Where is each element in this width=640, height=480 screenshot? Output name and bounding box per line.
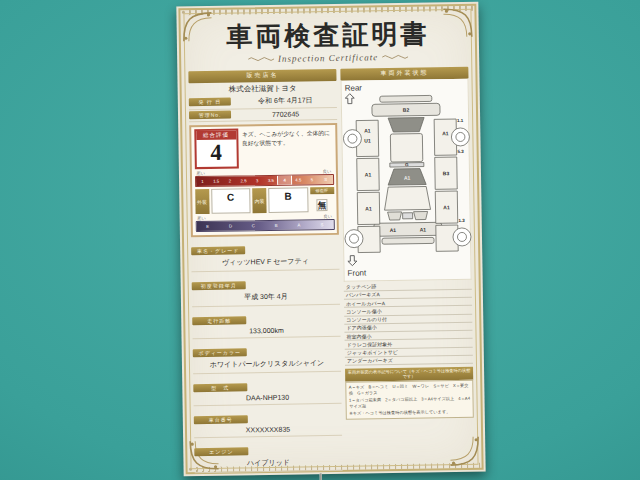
damage-mark: A1 xyxy=(442,130,449,136)
field-row: 初度登録年月 平成 30年 4月 xyxy=(191,269,340,306)
exterior-condition-panel: 車両外装状態 Rear Front xyxy=(340,66,475,480)
dealer-name: 株式会社滋賀トヨタ xyxy=(189,80,337,95)
evaluation-box: 総合評価 4 キズ、へこみが少なく、全体的に良好な状態です。 悪い 良い 1 1… xyxy=(189,122,339,236)
scale-tick: C xyxy=(242,221,265,230)
field-label: ボディーカラー xyxy=(193,348,247,357)
field-row: 車名・グレード ヴィッツHEV F セーフティ xyxy=(191,234,340,271)
scale-tick: 5 xyxy=(305,175,319,184)
damage-mark: A1 xyxy=(443,204,450,210)
damage-mark: A1 xyxy=(404,174,411,180)
tire-reading: 1.3 xyxy=(459,217,466,222)
scale-tick-selected: 4 xyxy=(278,175,292,184)
scale-tick: E xyxy=(196,222,219,231)
inspector-signature-box xyxy=(320,473,322,480)
field-label: 車台番号 xyxy=(194,415,248,424)
damage-mark: U1 xyxy=(364,137,371,143)
scale-tick: 1.5 xyxy=(209,176,223,185)
field-row: 走行距離 133,000km xyxy=(192,304,340,338)
damage-mark: B3 xyxy=(443,170,450,176)
flourish-right-icon xyxy=(382,53,408,59)
issue-date-label: 発 行 日 xyxy=(189,98,231,107)
certificate-title: 車両検査証明書 xyxy=(188,20,468,53)
issue-date-value: 令和 6年 4月17日 xyxy=(234,95,337,107)
field-label: 車名・グレード xyxy=(191,246,245,255)
field-row: 型 式 DAA-NHP130 xyxy=(193,371,341,405)
inspection-certificate: 車両検査証明書 Inspection Certificate 販売店名 株式会社… xyxy=(176,2,485,477)
defect-item: アンダーカバーキズ xyxy=(345,356,473,366)
legend-line: ※キズ・ヘコミ等は検査時の状態を表示しています。 xyxy=(349,408,470,416)
field-value: ホワイトパールクリスタルシャイン xyxy=(193,358,341,370)
field-value: 平成 30年 4月 xyxy=(192,291,340,303)
field-value: DAA-NHP130 xyxy=(193,393,341,402)
overall-score-scale: 1 1.5 2 2.5 3 3.5 4 4.5 5 S xyxy=(194,173,333,186)
scale-tick: S xyxy=(310,220,333,229)
field-label: エンジン xyxy=(194,447,248,456)
interior-grade: B xyxy=(268,187,308,213)
field-label: 型 式 xyxy=(193,383,247,392)
field-value: 133,000km xyxy=(192,326,340,335)
title-block: 車両検査証明書 Inspection Certificate xyxy=(188,20,469,65)
interior-label: 内装 xyxy=(252,188,266,213)
certificate-subtitle: Inspection Certificate xyxy=(278,52,378,64)
damage-mark: B2 xyxy=(403,106,410,112)
tire-reading: 1.1 xyxy=(457,117,464,122)
scale-tick: D xyxy=(219,221,242,230)
damage-mark: A1 xyxy=(390,227,397,233)
car-exterior-diagram: Rear Front xyxy=(341,78,472,281)
scale-tick: S xyxy=(319,174,333,183)
scale-tick: 3.5 xyxy=(264,175,278,184)
exterior-grade: C xyxy=(211,188,251,214)
overall-score-box: 総合評価 4 xyxy=(194,129,239,169)
damage-mark: G xyxy=(405,162,409,167)
evaluation-comment: キズ、へこみが少なく、全体的に良好な状態です。 xyxy=(241,127,334,168)
scale-tick: A xyxy=(288,220,311,229)
grade-scale: E D C B A S xyxy=(195,219,334,232)
scale-tick: 2 xyxy=(223,176,237,185)
field-value: XXXXXXX835 xyxy=(194,425,342,434)
damage-mark: A1 xyxy=(365,205,372,211)
scale-tick: 2.5 xyxy=(237,176,251,185)
scale-bad-label: 悪い xyxy=(197,216,206,221)
scale-tick: 4.5 xyxy=(291,175,305,184)
damage-mark: A1 xyxy=(365,171,372,177)
scale-good-label: 良い xyxy=(323,169,332,174)
scale-tick: 3 xyxy=(250,176,264,185)
exterior-label: 外装 xyxy=(195,189,209,214)
damage-mark: A1 xyxy=(364,127,371,133)
flourish-left-icon xyxy=(248,55,274,61)
repair-history-label: 修復歴 xyxy=(310,187,334,194)
field-label: 初度登録年月 xyxy=(192,281,246,290)
repair-history-value: 無 xyxy=(317,199,328,211)
scale-bad-label: 悪い xyxy=(196,171,205,176)
tire-reading: 5.3 xyxy=(457,148,464,153)
manage-no-label: 管理No. xyxy=(189,111,231,120)
overall-score-value: 4 xyxy=(196,140,236,167)
field-row: エンジン ハイブリッド xyxy=(194,435,343,472)
legend-text: A＝キズ B＝ヘコミ U＝凹ミ W＝ワレ S＝サビ X＝要交換 G＝ガラス 1＝… xyxy=(345,379,474,420)
damage-mark: A1 xyxy=(420,226,427,232)
field-row: 車台番号 XXXXXXX835 xyxy=(194,403,342,437)
vehicle-info-column: 販売店名 株式会社滋賀トヨタ 発 行 日 令和 6年 4月17日 管理No. 7… xyxy=(188,68,343,480)
defect-list: タッチペン跡 バンパーキズA ホイールカバーA コンソール傷小 コンソールのり付… xyxy=(344,281,473,366)
scale-tick: B xyxy=(265,221,288,230)
scale-tick: 1 xyxy=(196,176,210,185)
certificate-content: 車両検査証明書 Inspection Certificate 販売店名 株式会社… xyxy=(187,13,474,465)
field-value: ヴィッツHEV F セーフティ xyxy=(191,256,339,268)
field-row: ボディーカラー ホワイトパールクリスタルシャイン xyxy=(193,336,342,373)
scale-good-label: 良い xyxy=(323,214,332,219)
field-value: ハイブリッド xyxy=(194,457,342,469)
manage-no-value: 7702645 xyxy=(234,109,337,118)
field-label: 走行距離 xyxy=(192,316,246,325)
car-unfolded-diagram: B2 A1 U1 A1 A1 A1 B3 A1 G A1 A1 A1 xyxy=(342,90,473,268)
